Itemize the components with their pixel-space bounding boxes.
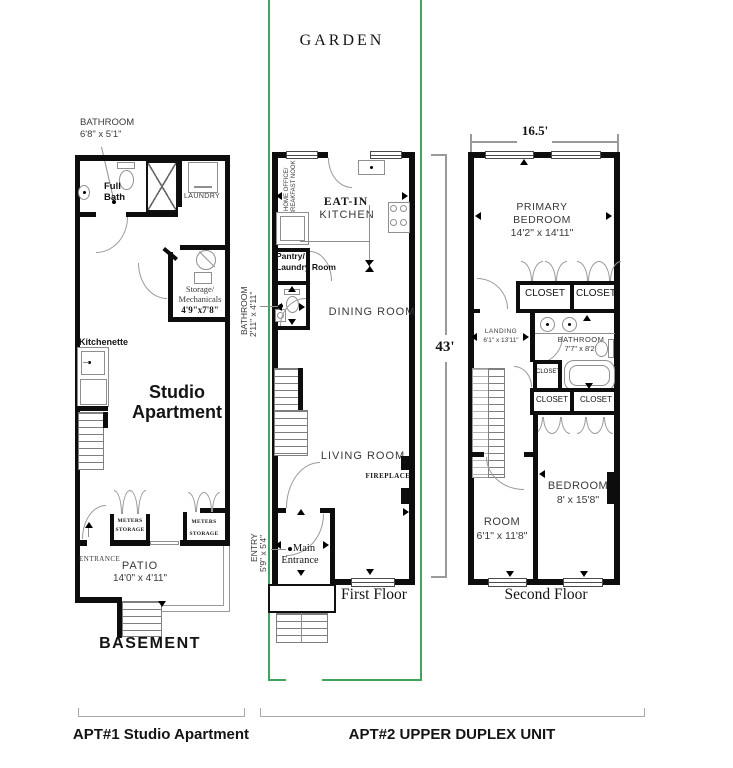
counter-line xyxy=(535,333,615,334)
bathroom-callout-label: BATHROOM xyxy=(80,118,134,129)
marker-triangle xyxy=(299,303,305,311)
leader-line xyxy=(271,549,286,550)
opening-marker xyxy=(365,260,374,272)
toilet-tank xyxy=(608,339,614,358)
full-bath-label2: Bath xyxy=(104,193,125,204)
dimension-tick xyxy=(617,134,619,152)
wall xyxy=(468,309,480,313)
marker-triangle xyxy=(288,286,296,292)
door-arc xyxy=(328,158,352,188)
wall xyxy=(103,412,108,428)
fireplace-label: FIREPLACE xyxy=(366,472,411,480)
closet-label: CLOSET xyxy=(536,369,560,376)
marker-triangle xyxy=(323,541,329,549)
door-arc xyxy=(486,457,524,490)
kitchenette-cabinet xyxy=(80,379,107,405)
bifold-door xyxy=(545,261,556,281)
marker-triangle xyxy=(506,571,514,577)
eat-in-kitchen-label: EAT-IN xyxy=(324,196,368,209)
closet-label: CLOSET xyxy=(580,395,612,404)
entry-side-dims: 5'9" x 5'4" xyxy=(259,535,268,572)
bifold-door xyxy=(138,490,146,514)
faucet xyxy=(370,166,373,169)
counter-line xyxy=(369,205,370,267)
storage-label2: Mechanicals xyxy=(179,295,222,305)
landing-dims: 6'1" x 13'11" xyxy=(483,337,518,344)
bifold-door xyxy=(130,490,138,514)
bifold-door xyxy=(595,417,604,434)
bathroom-callout-dims: 6'8" x 5'1" xyxy=(80,130,122,141)
pantry-label2: Laundry Room xyxy=(276,263,336,273)
wall xyxy=(330,508,335,584)
washer-detail xyxy=(194,186,212,188)
bifold-door xyxy=(599,261,610,281)
water-heater xyxy=(194,272,212,284)
entrance-arrow-line xyxy=(88,528,89,537)
wall xyxy=(335,579,351,585)
dimension-line xyxy=(445,155,447,335)
toilet-tank xyxy=(117,162,135,169)
room-dims: 6'1" x 11'8" xyxy=(477,530,528,542)
home-office-label2: BREAKFAST NOOK xyxy=(291,160,297,215)
marker-triangle xyxy=(402,192,408,200)
bracket-tick xyxy=(244,708,245,717)
primary-bedroom-label: PRIMARY xyxy=(516,201,567,213)
garden-boundary xyxy=(322,679,422,681)
bathroom2-dims: 7'7" x 8'2" xyxy=(565,345,598,354)
bifold-door xyxy=(552,417,561,434)
bifold-door xyxy=(532,261,543,281)
wall xyxy=(534,152,551,158)
wall xyxy=(110,514,114,541)
kitchenette-label: Kitchenette xyxy=(79,337,128,347)
sink-drain xyxy=(568,323,571,326)
wall xyxy=(573,411,620,415)
burner xyxy=(390,219,397,226)
bracket-line xyxy=(260,716,645,717)
wall xyxy=(395,579,415,585)
fridge-detail xyxy=(280,216,305,241)
garden-boundary xyxy=(420,0,422,681)
wall xyxy=(318,152,328,158)
wall xyxy=(168,252,173,317)
door-arc xyxy=(514,366,532,387)
wall xyxy=(306,285,310,330)
wall xyxy=(533,415,538,585)
sink-drain xyxy=(546,323,549,326)
basement-floor-label: BASEMENT xyxy=(99,635,201,653)
height-dimension-label: 43' xyxy=(435,339,454,356)
bifold-door xyxy=(188,492,196,512)
window xyxy=(551,151,601,159)
leader-dot xyxy=(288,547,292,551)
meters-label4: STORAGE xyxy=(190,531,219,537)
wall xyxy=(178,161,182,207)
marker-triangle xyxy=(583,315,591,321)
steps xyxy=(276,613,328,643)
marker-triangle xyxy=(297,570,305,576)
bifold-door xyxy=(521,261,532,281)
bifold-door xyxy=(577,417,586,434)
wall xyxy=(168,317,230,322)
burner xyxy=(400,205,407,212)
marker-triangle xyxy=(523,333,529,341)
marker-triangle xyxy=(297,509,305,515)
wall xyxy=(75,540,87,546)
bedroom-dims: 8' x 15'8" xyxy=(557,494,599,506)
bifold-door xyxy=(204,492,212,512)
bracket-line xyxy=(78,716,245,717)
wall xyxy=(110,540,150,546)
marker-triangle xyxy=(606,212,612,220)
window xyxy=(286,151,318,159)
wall xyxy=(146,514,150,541)
patio-dims: 14'0" x 4'11" xyxy=(113,573,167,585)
wall xyxy=(516,281,620,285)
first-floor-label: First Floor xyxy=(341,586,407,604)
steps-rail xyxy=(301,613,302,643)
door-arc xyxy=(477,278,508,309)
wall xyxy=(225,155,230,545)
main-entrance-label2: Entrance xyxy=(281,555,318,567)
bifold-door xyxy=(196,492,204,512)
fireplace xyxy=(401,488,409,504)
wall xyxy=(75,597,122,603)
marker-triangle xyxy=(366,569,374,575)
door-arc xyxy=(138,263,167,299)
garden-label: GARDEN xyxy=(300,32,385,50)
wall xyxy=(272,281,310,285)
leader-dot xyxy=(279,304,283,308)
primary-bedroom-label2: BEDROOM xyxy=(513,214,571,226)
entrance-label: ENTRANCE xyxy=(79,555,120,563)
marker-triangle xyxy=(276,192,282,200)
marker-triangle xyxy=(475,212,481,220)
toilet xyxy=(595,341,608,357)
burner xyxy=(390,205,397,212)
patio-label: PATIO xyxy=(122,560,158,573)
marker-triangle xyxy=(403,508,409,516)
apt2-label: APT#2 UPPER DUPLEX UNIT xyxy=(349,726,556,743)
stoop xyxy=(268,584,336,613)
bracket-tick xyxy=(260,708,261,717)
bifold-door xyxy=(114,490,122,514)
marker-triangle xyxy=(158,601,166,607)
window xyxy=(370,151,402,159)
wall xyxy=(468,452,484,457)
wall xyxy=(530,388,620,392)
marker-triangle xyxy=(580,571,588,577)
marker-triangle xyxy=(539,470,545,478)
stairs xyxy=(274,410,308,456)
wall xyxy=(272,326,310,330)
leader-line xyxy=(260,306,278,307)
storage-dims: 4'9"x7'8" xyxy=(181,305,219,315)
studio-label: Studio xyxy=(149,382,205,403)
apt1-label: APT#1 Studio Apartment xyxy=(73,726,249,743)
burner xyxy=(400,219,407,226)
door-arc xyxy=(96,217,128,253)
wall xyxy=(180,245,225,250)
washer xyxy=(188,162,218,193)
wall xyxy=(126,212,178,217)
fireplace xyxy=(401,456,409,470)
dimension-line xyxy=(445,362,447,577)
main-entrance-label: Main xyxy=(293,543,315,555)
studio-label2: Apartment xyxy=(132,402,222,423)
wall xyxy=(272,508,286,513)
bracket-tick xyxy=(78,708,79,717)
wall xyxy=(468,579,488,585)
window xyxy=(485,151,534,159)
bifold-door xyxy=(604,417,613,434)
home-office-label: HOME OFFICE/ xyxy=(284,168,290,211)
living-room-label: LIVING ROOM xyxy=(321,450,405,463)
meters-label3: METERS xyxy=(191,519,216,525)
garden-boundary xyxy=(268,0,270,681)
meters-label: METERS xyxy=(117,518,142,524)
faucet-line xyxy=(83,362,89,363)
wall xyxy=(183,512,187,542)
fan-symbol xyxy=(196,250,216,270)
dimension-tick xyxy=(470,134,472,152)
floor-plan-canvas: BATHROOM 6'8" x 5'1" Full Bath LAUNDRY S… xyxy=(0,0,733,768)
bifold-door xyxy=(577,261,588,281)
bifold-door xyxy=(543,417,552,434)
stairs xyxy=(78,412,104,470)
marker-triangle xyxy=(288,319,296,325)
closet-label: CLOSET xyxy=(536,395,568,404)
wall xyxy=(603,579,620,585)
bifold-door xyxy=(556,261,567,281)
marker-triangle xyxy=(471,333,477,341)
wall xyxy=(75,406,108,411)
marker-triangle xyxy=(275,541,281,549)
closet-label: CLOSET xyxy=(525,288,565,300)
pantry-label: Pantry/ xyxy=(276,252,305,262)
laundry-label: LAUNDRY xyxy=(184,193,220,201)
room-label: ROOM xyxy=(484,516,520,529)
wall xyxy=(80,212,96,217)
primary-bedroom-dims: 14'2" x 14'11" xyxy=(511,227,574,239)
bifold-door xyxy=(122,490,130,514)
dimension-tick xyxy=(431,576,447,578)
bifold-door xyxy=(586,417,595,434)
bifold-door xyxy=(610,261,621,281)
marker-triangle xyxy=(520,159,528,165)
shower xyxy=(146,161,178,212)
counter-line xyxy=(300,241,370,242)
wall xyxy=(570,281,574,312)
dimension-tick xyxy=(431,154,447,156)
bedroom-label: BEDROOM xyxy=(548,480,608,493)
door-arc xyxy=(286,462,320,508)
kitchen-label: KITCHEN xyxy=(319,209,374,222)
wall xyxy=(530,313,535,362)
bifold-door xyxy=(561,417,570,434)
toilet xyxy=(119,170,134,190)
threshold xyxy=(150,541,179,545)
landing-label: LANDING xyxy=(485,328,517,335)
dimension-line xyxy=(552,141,618,143)
meters-label2: STORAGE xyxy=(116,527,145,533)
bathroom-side-dims: 2'11" x 4'11" xyxy=(249,292,258,337)
garden-boundary xyxy=(268,679,286,681)
dimension-line xyxy=(470,141,517,143)
width-dimension-label: 16.5' xyxy=(522,124,548,139)
dining-room-label: DINING ROOM xyxy=(329,306,416,319)
bracket-tick xyxy=(644,708,645,717)
wall xyxy=(516,281,520,312)
closet-label: CLOSET xyxy=(576,288,616,300)
second-floor-label: Second Floor xyxy=(504,586,587,604)
stairs xyxy=(274,368,300,411)
wall xyxy=(298,368,303,411)
bifold-door xyxy=(588,261,599,281)
sink-drain xyxy=(83,191,86,194)
bifold-door xyxy=(212,492,220,512)
steps xyxy=(122,601,162,637)
